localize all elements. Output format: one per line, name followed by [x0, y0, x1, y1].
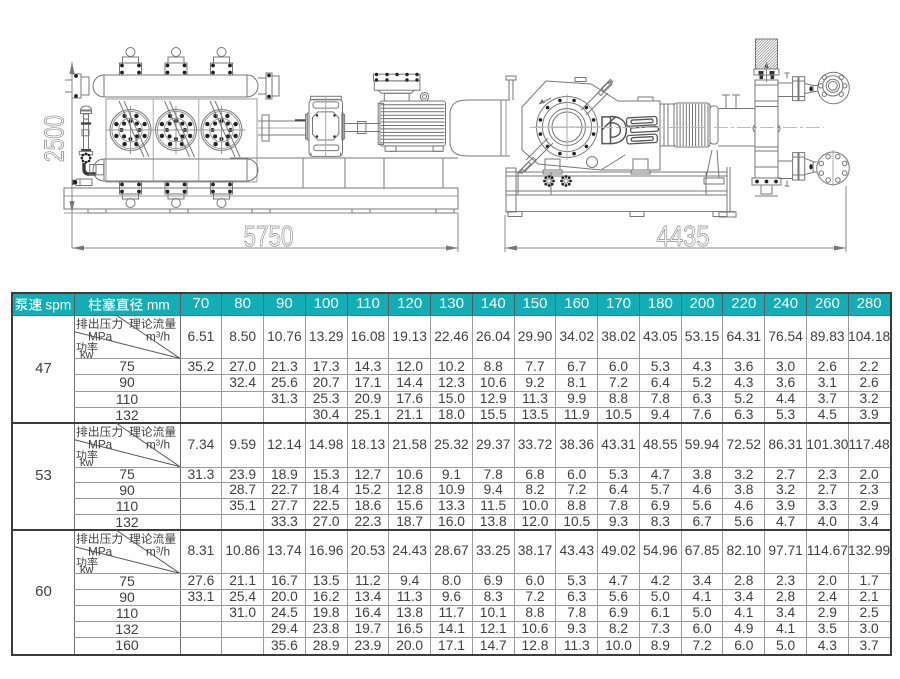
svg-text:4435: 4435: [657, 221, 710, 253]
svg-text:MPa: MPa: [88, 545, 113, 558]
svg-text:2500: 2500: [39, 115, 70, 162]
svg-text:m3/h: m3/h: [146, 545, 170, 558]
svg-text:mm: mm: [147, 298, 170, 313]
svg-text:5750: 5750: [244, 221, 294, 253]
svg-text:m3/h: m3/h: [146, 331, 170, 344]
svg-text:MPa: MPa: [88, 331, 113, 344]
svg-text:m3/h: m3/h: [146, 439, 170, 452]
svg-text:MPa: MPa: [88, 439, 113, 452]
svg-text:spm: spm: [45, 298, 71, 313]
